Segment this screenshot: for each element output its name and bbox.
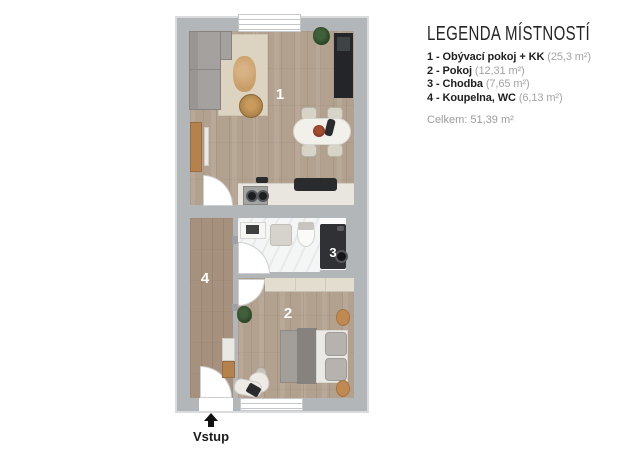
bedside-pouf <box>336 309 350 326</box>
toilet-cistern <box>298 222 314 230</box>
legend-item-area: (12,31 m²) <box>475 65 525 77</box>
entrance-opening <box>199 398 233 411</box>
burner <box>257 190 269 202</box>
living-cabinet <box>190 122 202 172</box>
window-top <box>238 14 301 32</box>
range-hood <box>256 177 268 183</box>
entrance-label: Vstup <box>193 429 229 444</box>
legend-item-label: 1 - Obývací pokoj + KK <box>427 51 544 63</box>
washer-drawer <box>337 226 344 231</box>
legend-item: 3 - Chodba (7,65 m²) <box>427 78 627 92</box>
legend-total: Celkem: 51,39 m² <box>427 114 627 126</box>
bed-folded-throw <box>297 328 317 384</box>
shower-cabinet <box>270 224 292 246</box>
kitchen-sink <box>294 178 337 191</box>
room-label-bedroom: 2 <box>280 306 296 322</box>
legend-item-area: (7,65 m²) <box>486 78 530 90</box>
legend-item-area: (6,13 m²) <box>519 92 563 104</box>
bed-pillow <box>325 332 347 356</box>
living-shelf <box>204 127 209 166</box>
wardrobe-seam <box>325 278 326 292</box>
legend-item: 4 - Koupelna, WC (6,13 m²) <box>427 92 627 106</box>
tv-shelf <box>337 37 350 51</box>
hallway-cabinet <box>222 338 235 361</box>
window-bottom <box>240 398 303 411</box>
legend-item-area: (25,3 m²) <box>547 51 591 63</box>
legend-item: 2 - Pokoj (12,31 m²) <box>427 65 627 79</box>
plant-icon <box>313 27 330 45</box>
pouf <box>239 94 263 118</box>
legend-items: 1 - Obývací pokoj + KK (25,3 m²) 2 - Pok… <box>427 51 627 105</box>
coffee-table <box>233 56 256 92</box>
sofa-chaise <box>220 31 232 60</box>
legend-panel: LEGENDA MÍSTNOSTÍ 1 - Obývací pokoj + KK… <box>427 24 627 126</box>
room-label-washer: 3 <box>325 245 341 261</box>
legend-item: 1 - Obývací pokoj + KK (25,3 m²) <box>427 51 627 65</box>
floor-plan: 1 2 3 4 <box>177 18 367 411</box>
dining-chair <box>327 144 343 157</box>
wardrobe <box>265 278 354 292</box>
room-label-living: 1 <box>272 87 288 103</box>
bathroom-sink-basin <box>246 225 259 234</box>
entrance-marker: Vstup <box>189 413 233 444</box>
hallway-cabinet-lower <box>222 361 235 378</box>
bed-pillow <box>325 358 347 381</box>
entrance-arrow-icon <box>204 413 218 427</box>
plant-icon <box>237 306 252 323</box>
door-frame-stub <box>232 236 238 244</box>
floor-plan-page: 1 2 3 4 Vstup LEGENDA MÍSTNOSTÍ 1 - Obýv… <box>0 0 640 453</box>
room-label-hallway: 4 <box>197 271 213 287</box>
wardrobe-seam <box>295 278 296 292</box>
legend-item-label: 2 - Pokoj <box>427 65 472 77</box>
bedside-pouf <box>336 380 350 397</box>
table-bowl <box>313 125 325 137</box>
dining-chair <box>301 144 317 157</box>
legend-item-label: 3 - Chodba <box>427 78 483 90</box>
legend-title: LEGENDA MÍSTNOSTÍ <box>427 24 577 44</box>
legend-item-label: 4 - Koupelna, WC <box>427 92 516 104</box>
sofa-backrest <box>189 31 198 110</box>
